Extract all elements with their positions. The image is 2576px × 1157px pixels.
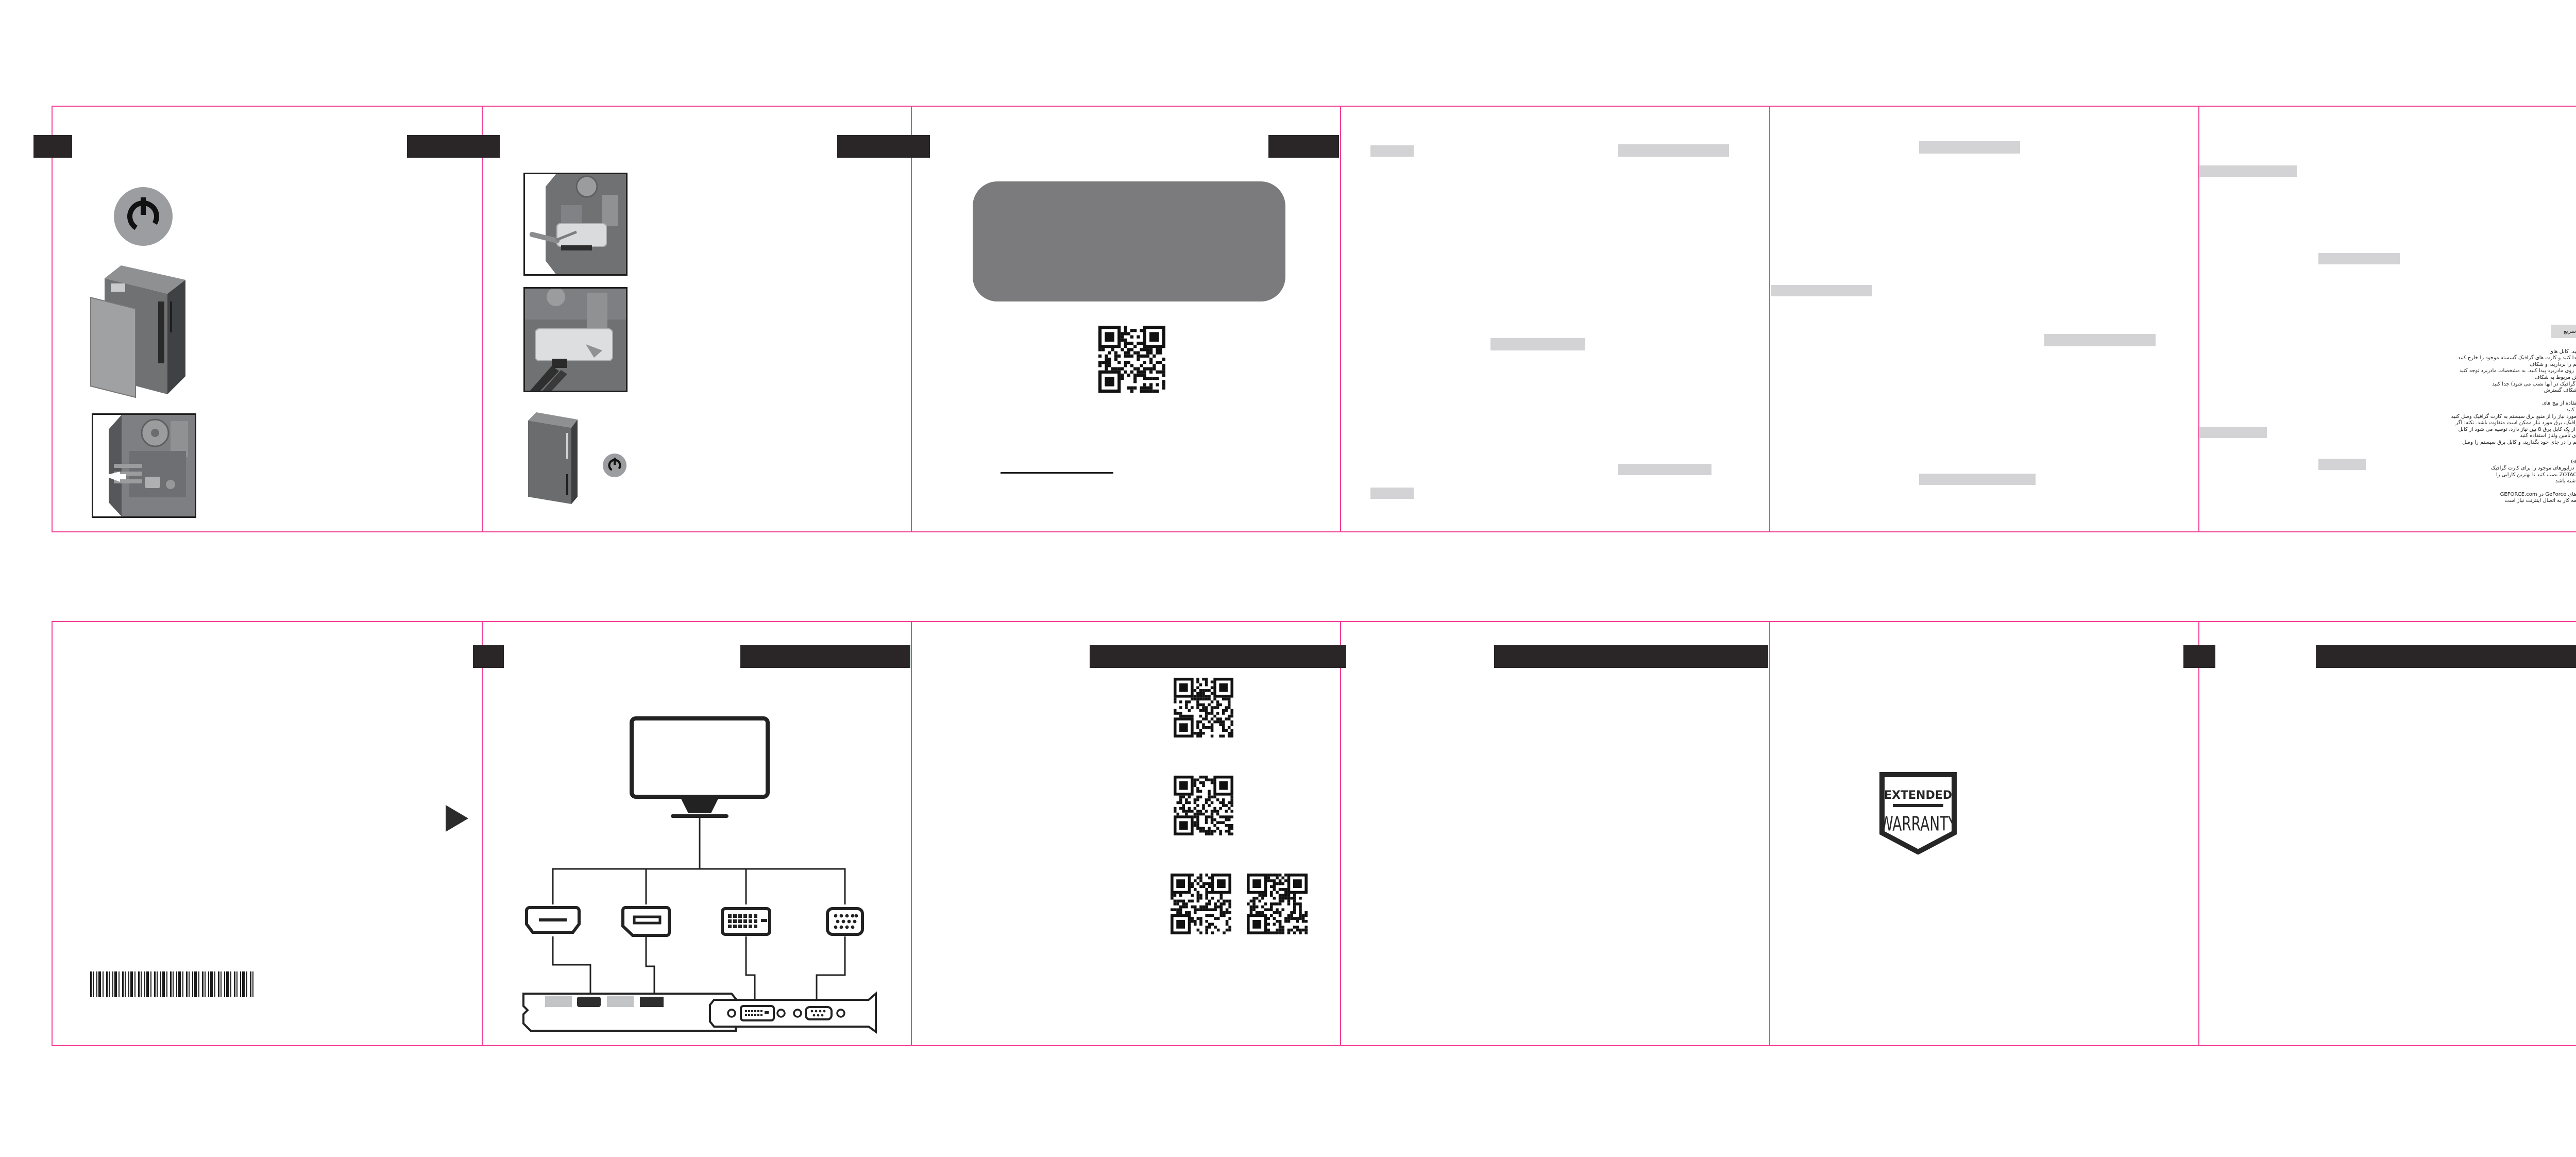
header-bar	[2316, 645, 2576, 668]
qr-code	[1171, 874, 1231, 934]
farsi-text-block: نصب کارت گرافیککامپیوتر را خاموش کنید. ک…	[2473, 342, 2576, 505]
crop-divider	[1769, 622, 1770, 1045]
url-underline	[1001, 472, 1113, 474]
power-icon-small	[603, 454, 626, 477]
text-line: نصب درایور GEFORCE	[2473, 459, 2576, 466]
qr-code	[1174, 776, 1233, 835]
sheet-top	[52, 106, 2576, 532]
case-interior-frame	[92, 413, 196, 518]
text-line: موجود است، برای ادامه کار به اتصال اینتر…	[2473, 498, 2576, 505]
crop-divider	[2198, 622, 2199, 1045]
header-bar	[1268, 135, 1339, 158]
placeholder-text-bar	[1490, 338, 1585, 350]
power-icon-large	[114, 187, 173, 246]
crop-divider	[482, 622, 483, 1045]
placeholder-text-bar	[1919, 141, 2020, 154]
placeholder-text-bar	[2199, 165, 2297, 177]
warranty-line2-svg: WARRANTY	[1879, 813, 1957, 835]
gray-rounded-box	[973, 181, 1285, 301]
placeholder-text-bar	[2318, 253, 2400, 264]
header-bar	[740, 645, 910, 668]
print-spread: راهنمای نصب سریع نصب کارت گرافیککامپیوتر…	[0, 0, 2576, 1157]
text-line	[2473, 485, 2576, 492]
extended-warranty-badge: EXTENDED WARRANTY	[1879, 772, 1957, 854]
header-bar	[837, 135, 930, 158]
play-triangle-icon	[446, 805, 468, 832]
placeholder-text-bar	[1771, 285, 1872, 296]
warranty-line1-svg: EXTENDED	[1884, 789, 1952, 802]
crop-divider	[1769, 107, 1770, 531]
text-line: درپوش محفظه سیستم را بردارید، و شکاف	[2473, 362, 2576, 368]
placeholder-text-bar	[1618, 464, 1711, 475]
placeholder-text-bar	[1370, 488, 1414, 499]
crop-divider	[911, 107, 912, 531]
sheet-bottom	[52, 621, 2576, 1046]
text-line: برای اجرای بازی ها داشته باشد	[2473, 478, 2576, 485]
text-line: کامپیوتر را خاموش کنید. کابل های	[2473, 349, 2576, 356]
text-line	[2473, 452, 2576, 459]
header-bar	[2183, 645, 2215, 668]
text-line: متصل به سیستم را جدا کنید و کارت های گرا…	[2473, 355, 2576, 362]
placeholder-text-bar	[1919, 474, 2036, 485]
text-line: بررسی کنید جدیدترین درایورهای موجود را ب…	[2473, 465, 2576, 472]
text-line: های 8 پین جداگانه برای تأمین ولتاژ استفا…	[2473, 433, 2576, 440]
placeholder-text-bar	[1618, 144, 1729, 157]
header-bar	[473, 645, 504, 668]
text-line: PCI Express x16 را روی مادربرد پیدا کنید…	[2473, 368, 2576, 375]
qr-code	[1098, 326, 1165, 393]
text-line: درپوش شکاف گسترش مربوط به شکاف	[2473, 375, 2576, 381]
qr-code	[1247, 874, 1308, 934]
text-line: درپوش سیستم محکم کنید	[2473, 407, 2576, 414]
text-line: کارت گرافیک را با استفاده از پیچ های	[2473, 400, 2576, 407]
tower-closed-illustration	[522, 412, 585, 511]
placeholder-text-bar	[2044, 334, 2156, 346]
install-step-screwdriver-frame	[523, 173, 628, 276]
qr-code	[1174, 678, 1233, 737]
text-line: درپوش محفظه سیستم را در جای خود بگذارید،…	[2473, 440, 2576, 446]
crop-divider	[911, 622, 912, 1045]
placeholder-text-bar	[2318, 459, 2366, 470]
text-line: کابل های برق PCI-E مورد نیاز را از منبع …	[2473, 414, 2576, 421]
tower-open-illustration	[90, 265, 191, 405]
crop-divider	[1340, 107, 1341, 531]
header-bar	[1090, 645, 1346, 668]
farsi-heading: راهنمای نصب سریع	[2551, 325, 2576, 338]
display-connection-diagram	[489, 711, 902, 1036]
text-line: بسته به مدل کارت گرافیک، برق مورد نیاز م…	[2473, 420, 2576, 427]
text-line: نکته: جدیدترین درایورهای GeForce در GEFO…	[2473, 492, 2576, 498]
header-bar	[407, 135, 500, 158]
text-line: های موجود (که کارت گرافیک در آنها نصب می…	[2473, 381, 2576, 388]
crop-divider	[1340, 622, 1341, 1045]
header-bar	[1494, 645, 1768, 668]
text-line: کارت گرافیک به بیش از یک کابل برق 8 پین …	[2473, 427, 2576, 433]
placeholder-text-bar	[1370, 145, 1414, 157]
text-line: قرار دهید	[2473, 394, 2576, 401]
install-step-power-frame	[523, 287, 628, 392]
header-bar	[33, 135, 72, 158]
crop-divider	[482, 107, 483, 531]
barcode	[90, 971, 256, 997]
text-line: ZOTAC GAMING GeForce نصب کنید تا بهترین …	[2473, 472, 2576, 479]
text-line: کنید	[2473, 446, 2576, 453]
text-line: کارت را محکم داخل شکاف گسترش	[2473, 388, 2576, 394]
placeholder-text-bar	[2199, 427, 2267, 438]
text-line: نصب کارت گرافیک	[2473, 342, 2576, 349]
